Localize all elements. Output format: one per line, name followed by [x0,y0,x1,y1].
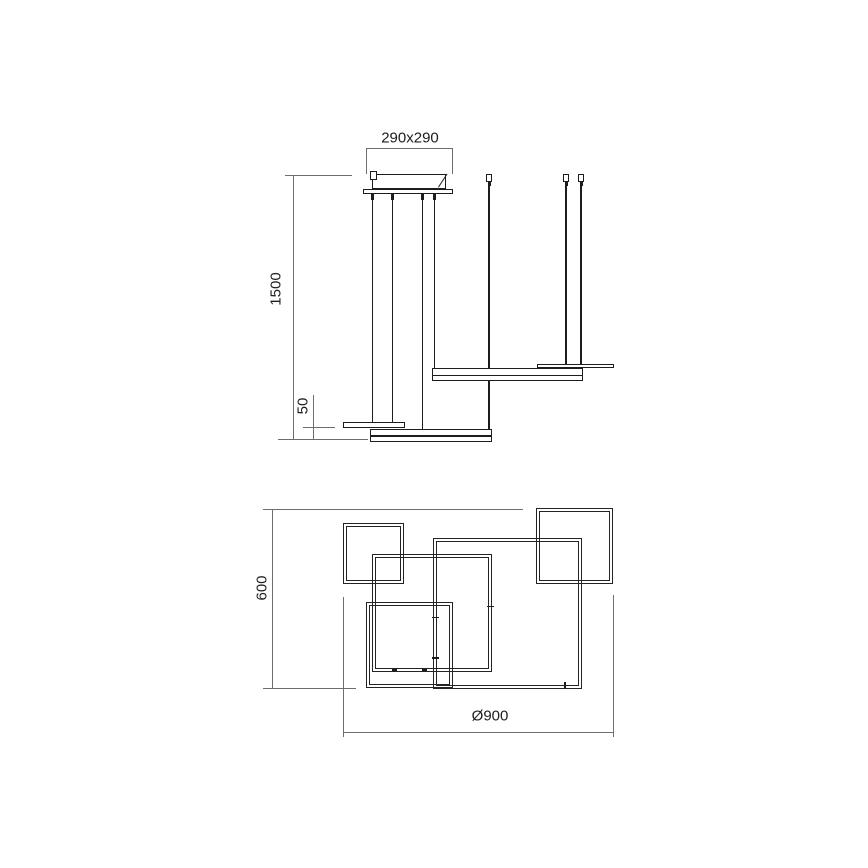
dim-drop-ext-bottom [278,439,368,440]
technical-drawing-canvas: 290x290 1500 50 600 Ø900 [0,0,868,868]
dim-depth-line [272,509,273,689]
dim-width-label: Ø900 [472,708,509,725]
ceiling-cap-stem [580,182,583,186]
dim-depth-ext-top [263,509,523,510]
dim-width-line [343,732,614,733]
wire-point-tick [432,617,440,619]
suspension-wire [422,193,423,430]
ceiling-cap [563,174,569,182]
ceiling-cap-stem [488,182,491,186]
ceiling-cap-stem [565,182,568,186]
suspension-wire [392,193,393,423]
wire-fitting [371,194,374,200]
suspension-wire [565,185,566,366]
dim-width-ext-right [613,595,614,737]
wire-point-tick [392,669,397,671]
canopy-mounting-plate [363,189,453,194]
dim-depth-label: 600 [254,575,271,600]
ceiling-cap [486,174,492,182]
suspension-wire [434,193,435,369]
ceiling-cap [578,174,584,182]
dim-profile-line [313,395,314,440]
dim-drop-ext-top [285,175,352,176]
dim-width-ext-left [343,597,344,737]
dim-canopy-label: 290x290 [381,130,439,147]
dim-canopy-ext-left [366,148,367,174]
suspension-wire [488,185,489,430]
wire-fitting [433,194,436,200]
wire-point-tick [432,657,440,659]
canopy-cable-gland [370,171,377,181]
wire-point-tick [487,606,495,608]
canopy-body [372,174,446,189]
wire-fitting [391,194,394,200]
bottom-light-bar-seam [370,435,492,436]
middle-light-bar-seam [432,375,583,376]
wire-point-tick [564,682,566,689]
dim-canopy-line [366,148,453,149]
dim-drop-label: 1500 [268,272,285,305]
suspension-wire [372,193,373,423]
dim-canopy-ext-right [452,148,453,174]
wire-fitting [421,194,424,200]
middle-bar-top-plate [537,364,614,369]
dim-profile-tick [303,427,335,428]
bottom-bar-top-plate [343,422,405,427]
suspension-wire [580,185,581,366]
wire-point-tick [422,669,427,671]
dim-profile-height-label: 50 [295,398,312,415]
